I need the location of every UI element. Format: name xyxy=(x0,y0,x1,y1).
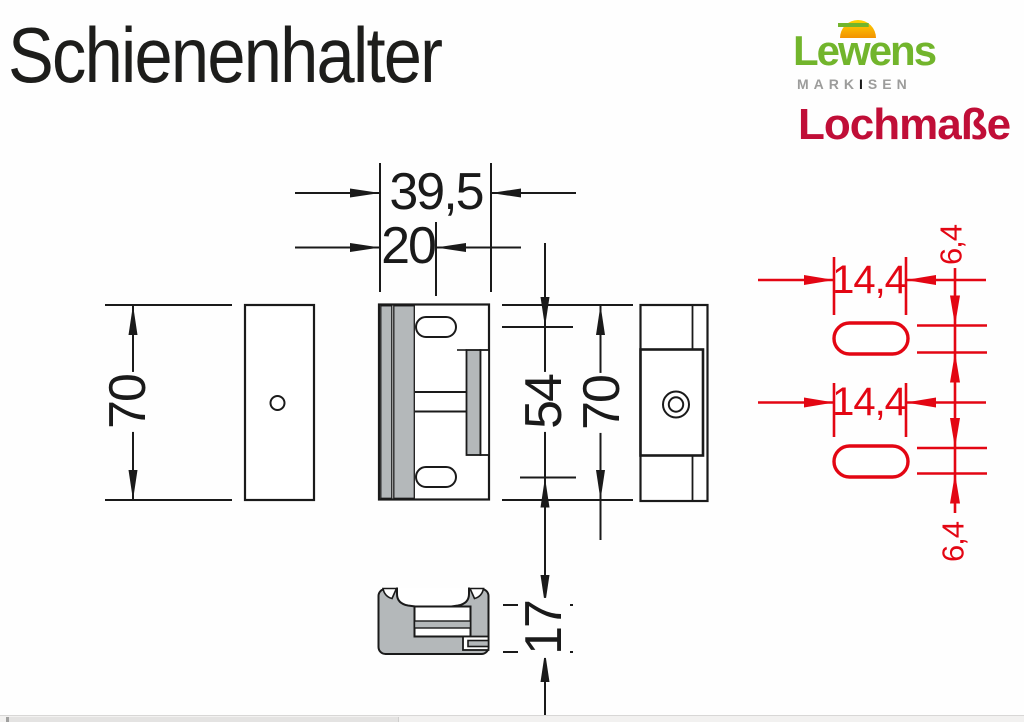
logo-subtitle-prefix: MARK xyxy=(797,76,859,92)
front-view xyxy=(379,305,489,500)
red-slot-bottom xyxy=(834,446,908,477)
side-view-hole xyxy=(271,396,285,410)
clamp-profile-view xyxy=(379,588,489,655)
back-view-hole-inner xyxy=(669,397,683,411)
dim-slot-spacing: 54 xyxy=(518,372,570,432)
dim-left-height: 70 xyxy=(102,372,154,432)
horizontal-scrollbar-thumb[interactable] xyxy=(6,717,399,722)
back-view xyxy=(641,305,708,501)
dim-hole-offset: 20 xyxy=(381,220,435,272)
dim-slot-height-top: 6,4 xyxy=(936,222,967,268)
dim-clamp-height: 17 xyxy=(518,598,570,658)
dim-slot-height-bottom: 6,4 xyxy=(938,519,969,565)
dim-slot-width-bottom: 14,4 xyxy=(832,382,906,422)
section-heading-lochmasse: Lochmaße xyxy=(798,100,1010,150)
logo-brand-text: Lewens xyxy=(793,30,935,72)
dim-slot-width-top: 14,4 xyxy=(832,260,906,300)
dim-right-height: 70 xyxy=(576,373,628,433)
front-view-slot-bottom xyxy=(416,467,456,487)
front-view-slot-top xyxy=(416,317,456,337)
horizontal-scrollbar[interactable] xyxy=(0,715,1024,722)
page-title: Schienenhalter xyxy=(8,10,441,101)
page: 39,5 20 70 54 70 17 14,4 14,4 6,4 6,4 Sc… xyxy=(0,0,1024,722)
logo-brand-w: w xyxy=(838,27,869,74)
front-view-jaw xyxy=(467,350,481,455)
dim-overall-width: 39,5 xyxy=(389,166,482,218)
logo-brand-suffix: ens xyxy=(869,27,935,74)
logo-subtitle-accent: I xyxy=(859,76,868,92)
horizontal-scrollbar-tick xyxy=(6,717,9,722)
logo-subtitle-suffix: SEN xyxy=(868,76,912,92)
logo-subtitle: MARKISEN xyxy=(797,76,912,92)
logo-brand-prefix: Le xyxy=(793,27,838,74)
red-slot-top xyxy=(834,323,908,354)
side-view xyxy=(245,305,314,500)
